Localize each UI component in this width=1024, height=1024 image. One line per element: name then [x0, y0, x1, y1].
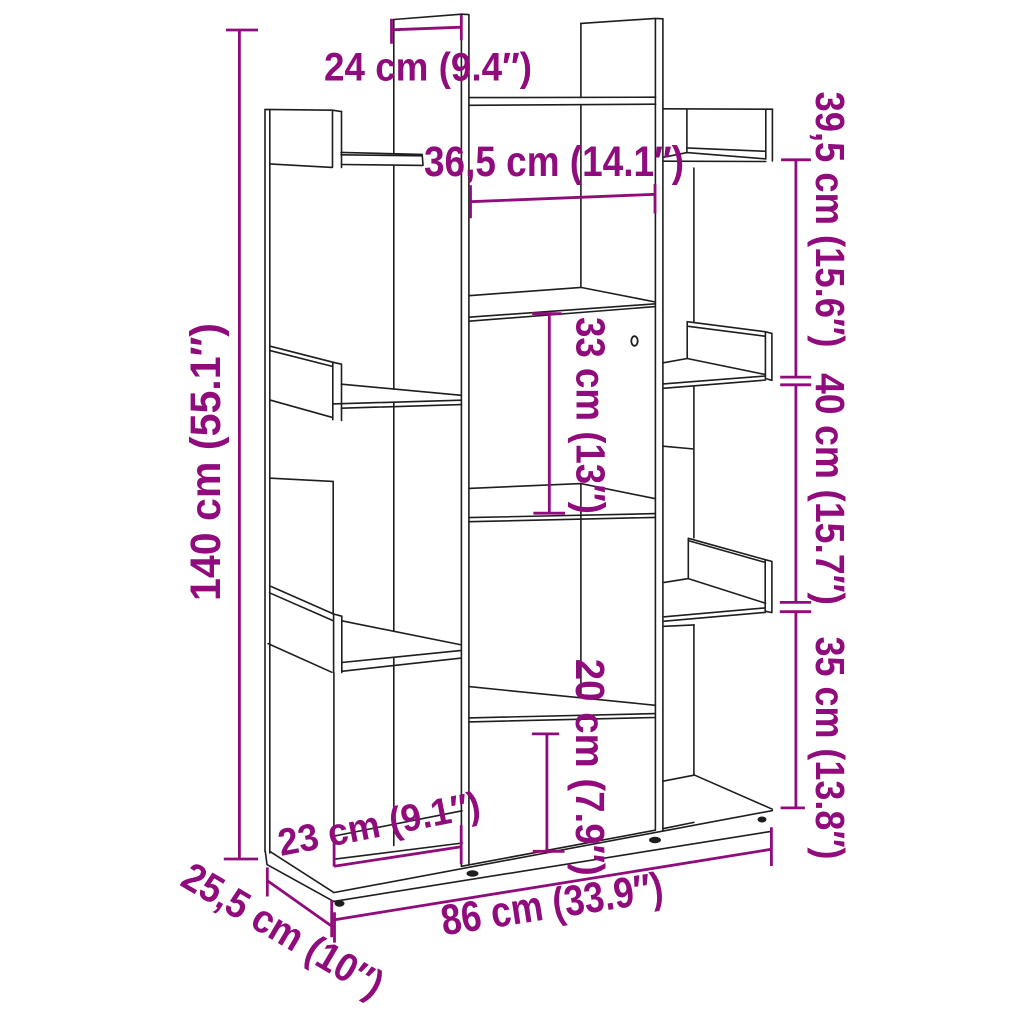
svg-text:40 cm (15.7″): 40 cm (15.7″) [807, 373, 853, 605]
svg-text:36,5 cm (14.1″): 36,5 cm (14.1″) [424, 138, 684, 186]
svg-text:35 cm (13.8″): 35 cm (13.8″) [807, 637, 853, 860]
svg-text:39,5 cm (15.6″): 39,5 cm (15.6″) [807, 92, 853, 348]
svg-text:140 cm (55.1″): 140 cm (55.1″) [182, 323, 230, 601]
svg-text:33 cm (13″): 33 cm (13″) [568, 317, 614, 514]
svg-text:20 cm (7.9″): 20 cm (7.9″) [567, 659, 613, 876]
svg-text:24 cm (9.4″): 24 cm (9.4″) [324, 46, 532, 90]
